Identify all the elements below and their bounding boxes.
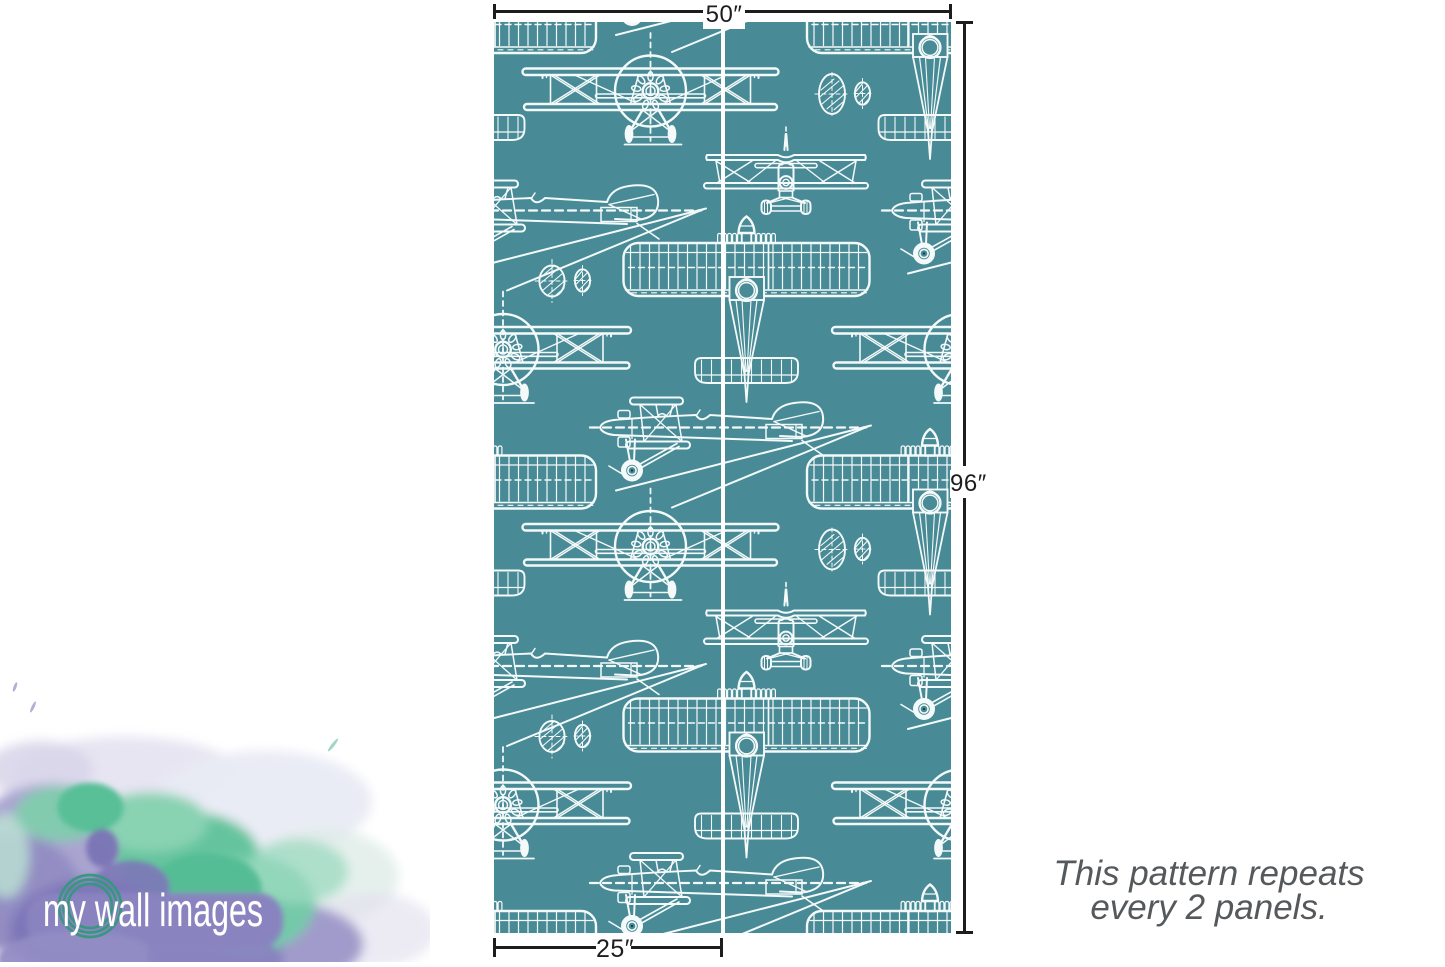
svg-text:my wall images: my wall images	[43, 885, 263, 936]
